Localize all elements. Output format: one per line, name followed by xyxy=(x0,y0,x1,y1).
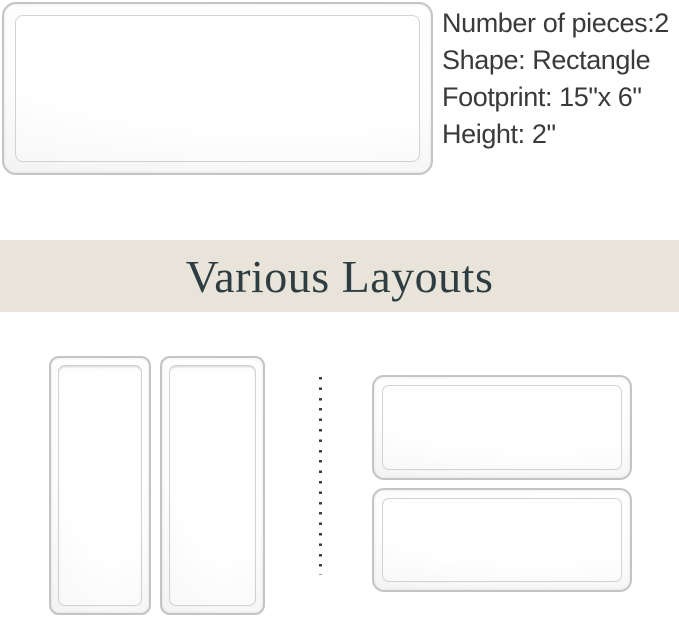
product-infographic: Number of pieces:2 Shape: Rectangle Foot… xyxy=(0,0,679,618)
horizontal-tray-photo-2 xyxy=(372,488,632,592)
vertical-tray-1-inner-rim xyxy=(58,365,142,606)
banner-title: Various Layouts xyxy=(186,250,494,303)
spec-shape: Shape: Rectangle xyxy=(442,42,679,79)
vertical-tray-photo-2 xyxy=(160,356,265,615)
large-tray-inner-rim xyxy=(15,15,420,162)
horizontal-tray-photo-1 xyxy=(372,375,632,480)
spec-footprint: Footprint: 15"x 6" xyxy=(442,79,679,116)
spec-number-of-pieces: Number of pieces:2 xyxy=(442,5,679,42)
spec-list: Number of pieces:2 Shape: Rectangle Foot… xyxy=(442,5,679,153)
spec-height: Height: 2" xyxy=(442,116,679,153)
dotted-divider xyxy=(319,377,322,575)
vertical-tray-2-inner-rim xyxy=(169,365,256,606)
horizontal-tray-1-inner-rim xyxy=(382,385,622,470)
vertical-tray-photo-1 xyxy=(49,356,151,615)
large-tray-top-view-photo xyxy=(2,2,433,175)
horizontal-tray-2-inner-rim xyxy=(382,498,622,582)
section-banner: Various Layouts xyxy=(0,240,679,312)
